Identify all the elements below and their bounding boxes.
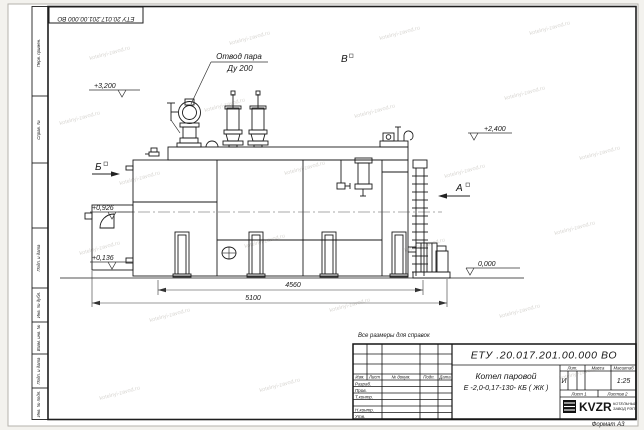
margin-label: Справ. №: [36, 120, 41, 140]
margin-label: Взам. инв. №: [36, 324, 41, 351]
row-razrab: Разраб.: [355, 381, 371, 386]
gost-a3-drawing: kotelnyi-zavod.ru kotelnyi-zavod.ru kote…: [0, 0, 644, 430]
product-model: Е -2,0-0,17-130- КБ ( ЖК ): [464, 383, 549, 392]
row-utv: Утв.: [355, 414, 365, 419]
col-podp: Подп.: [423, 375, 434, 380]
callout-line2: Ду 200: [226, 64, 253, 73]
margin-label: Подп. и дата: [36, 357, 41, 385]
doc-number: ЕТУ .20.017.201.00.000 ВО: [471, 350, 617, 362]
col-izm: Изм.: [355, 375, 364, 380]
view-label-v: В: [341, 54, 348, 65]
sheet-background: [8, 4, 638, 426]
margin-label: Инв. № подл.: [36, 391, 41, 418]
scale-value: 1:25: [617, 378, 631, 385]
dim-5100: 5100: [245, 295, 261, 302]
dim-4560: 4560: [285, 282, 301, 289]
top-stamp-text: ЕТУ 20.017.201.00.000 ВО: [57, 15, 134, 22]
callout-line1: Отвод пара: [216, 52, 262, 61]
logo-sub1: КОТЕЛЬНЫЙ: [613, 402, 637, 406]
elevation-0000: 0,000: [478, 261, 496, 268]
elevation-2400: +2,400: [484, 126, 506, 133]
view-label-a: А: [455, 183, 463, 194]
drawing-sheet: kotelnyi-zavod.ru kotelnyi-zavod.ru kote…: [0, 0, 644, 430]
col-data: Дата: [438, 375, 451, 380]
scale-header: Масштаб: [613, 366, 634, 371]
col-list: Лист: [368, 375, 380, 380]
product-name: Котел паровой: [476, 371, 537, 381]
margin-label: Подп. и дата: [36, 244, 41, 272]
logo-name: KVZR: [579, 400, 612, 414]
view-label-b: Б: [95, 162, 102, 173]
col-doc: № докум.: [392, 375, 411, 380]
mass-header: Масса: [592, 366, 605, 371]
lit-header: Лит.: [566, 366, 577, 371]
elevation-3200: +3,200: [94, 83, 116, 90]
elevation-0926: +0,926: [92, 205, 114, 212]
row-nkontr: Н.контр.: [355, 407, 374, 412]
sheet-number: Лист 1: [570, 392, 587, 397]
reference-note: Все размеры для справок: [358, 333, 431, 339]
row-prov: Пров.: [355, 388, 367, 393]
row-tkontr: Т.контр.: [355, 394, 373, 399]
manhole: [222, 247, 236, 259]
sheets-total: Листов 2: [606, 392, 628, 397]
margin-label: Перв. примен.: [36, 39, 41, 68]
elevation-0136: +0,136: [92, 255, 114, 262]
logo-sub2: ЗАВОД РЭП: [613, 407, 635, 411]
margin-label: Инв. № дубл.: [36, 292, 41, 318]
format-note: Формат А3: [592, 422, 625, 428]
